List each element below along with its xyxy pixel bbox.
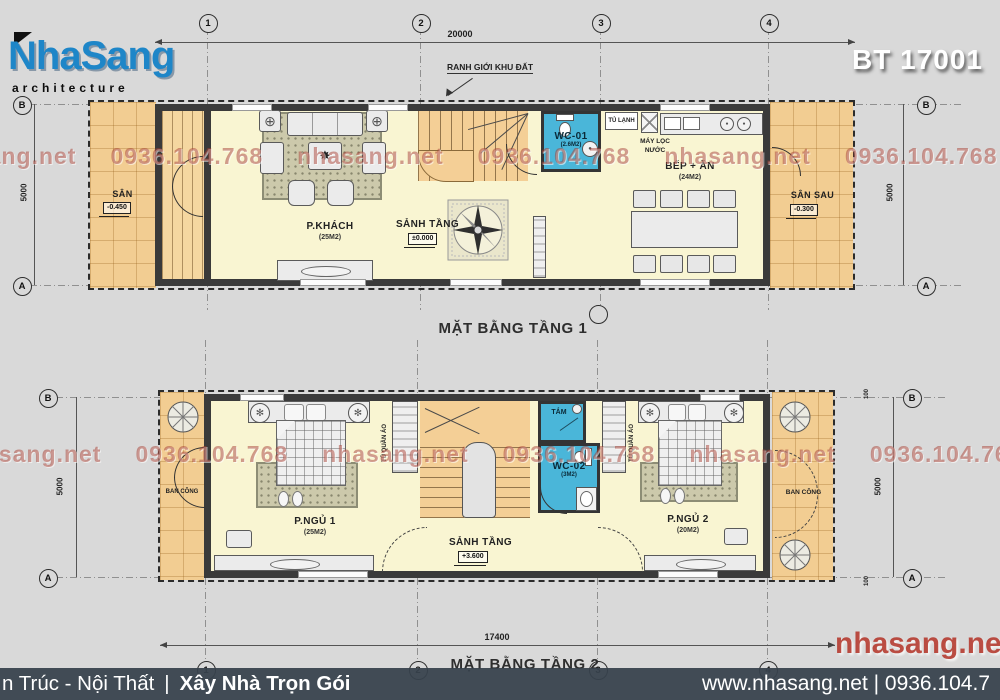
dim-line-5000-f1-right bbox=[903, 104, 904, 285]
fridge-label: TỦ LẠNH bbox=[608, 118, 634, 124]
grid-bubble-B-f2-right: B bbox=[903, 389, 922, 408]
floor1-title: MẶT BẰNG TẦNG 1 bbox=[393, 320, 633, 337]
pillow bbox=[306, 404, 326, 421]
sink-basin bbox=[683, 117, 700, 130]
room-area-living: (25M2) bbox=[270, 234, 390, 241]
stool bbox=[226, 530, 252, 548]
cabinet-handle bbox=[301, 266, 351, 277]
dining-chair bbox=[633, 255, 656, 273]
dim-arrow bbox=[828, 642, 835, 648]
window bbox=[658, 571, 718, 578]
window bbox=[368, 104, 408, 111]
grid-bubble-label: A bbox=[923, 281, 930, 292]
watermark-site: nhasang.net bbox=[297, 143, 443, 170]
project-code: BT 17001 bbox=[852, 44, 983, 76]
window bbox=[300, 279, 366, 286]
level-marker-hall-f2: +3.600 bbox=[458, 551, 488, 563]
dim-line-17400 bbox=[160, 645, 835, 646]
grid-bubble-label: 2 bbox=[418, 18, 423, 29]
slipper-oval bbox=[292, 491, 303, 507]
footer-divider: | bbox=[164, 672, 169, 696]
balcony-plant bbox=[778, 400, 812, 439]
grid-bubble-B-f1-right: B bbox=[917, 96, 936, 115]
window bbox=[450, 279, 502, 286]
watermark-site: nhasang.net bbox=[0, 143, 76, 170]
room-label-bedroom2: P.NGỦ 2 bbox=[643, 514, 733, 525]
end-table: ⊕ bbox=[366, 110, 388, 132]
watermark-site: nhasang.net bbox=[689, 441, 835, 468]
grid-bubble-label: B bbox=[19, 100, 26, 111]
balcony-plant bbox=[778, 538, 812, 577]
dim-text-5000-f1-left: 5000 bbox=[20, 173, 29, 213]
window bbox=[700, 394, 740, 401]
grid-bubble-4-top: 4 bbox=[760, 14, 779, 33]
room-label-hall-f1: SẢNH TẦNG bbox=[385, 219, 470, 230]
grid-bubble-label: B bbox=[909, 393, 916, 404]
balcony-plant bbox=[166, 400, 200, 439]
watermark-phone: 0936.104.768 bbox=[478, 143, 631, 170]
window bbox=[240, 394, 284, 401]
dining-table bbox=[631, 211, 738, 248]
grid-bubble-B-f2-left: B bbox=[39, 389, 58, 408]
blanket-fold bbox=[659, 421, 676, 438]
room-area-bedroom1: (25M2) bbox=[270, 529, 360, 536]
watermark-site: nhasang.net bbox=[0, 441, 101, 468]
pillow bbox=[688, 404, 706, 421]
pillow bbox=[668, 404, 686, 421]
footer-left-text: n Trúc - Nội Thất bbox=[2, 672, 154, 696]
grid-bubble-label: A bbox=[45, 573, 52, 584]
room-area-wc02: (3M2) bbox=[538, 472, 600, 478]
dining-chair bbox=[713, 190, 736, 208]
dining-chair bbox=[713, 255, 736, 273]
room-label-wc01: WC-01 bbox=[541, 131, 601, 142]
grid-bubble-A-f1-right: A bbox=[917, 277, 936, 296]
plant-icon bbox=[778, 538, 812, 572]
footer-right-text: www.nhasang.net | 0936.104.7 bbox=[702, 672, 990, 696]
watermark-row-1: nhasang.net 0936.104.768 nhasang.net 093… bbox=[0, 143, 1000, 170]
blanket-fold bbox=[277, 421, 295, 439]
grid-bubble-A-f2-left: A bbox=[39, 569, 58, 588]
nightstand-flower-icon: ✻ bbox=[724, 403, 744, 423]
room-label-hall-f2: SẢNH TẦNG bbox=[438, 537, 523, 548]
room-label-front-yard: SÂN bbox=[100, 189, 145, 199]
level-marker-back-yard: -0.300 bbox=[790, 204, 818, 216]
stove-burner-icon: ● bbox=[737, 117, 751, 131]
dining-chair bbox=[633, 190, 656, 208]
footer-left: n Trúc - Nội Thất | Xây Nhà Trọn Gói bbox=[2, 668, 351, 700]
grid-bubble-label: A bbox=[19, 281, 26, 292]
window bbox=[232, 104, 272, 111]
room-label-bedroom1: P.NGỦ 1 bbox=[270, 516, 360, 527]
level-marker-front-yard: -0.450 bbox=[103, 202, 131, 214]
dim-text-17400: 17400 bbox=[457, 632, 537, 642]
watermark-phone: 0936.104.768 bbox=[870, 441, 1000, 468]
room-label-shower: TẮM bbox=[542, 409, 576, 416]
window bbox=[640, 279, 710, 286]
dim-text-100-top: 100 bbox=[864, 383, 870, 405]
room-label-back-yard: SÂN SAU bbox=[785, 190, 840, 200]
plant-icon bbox=[166, 400, 200, 434]
room-area-kitchen: (24M2) bbox=[650, 174, 730, 181]
window bbox=[298, 571, 368, 578]
watermark-row-2: nhasang.net 0936.104.768 nhasang.net 093… bbox=[0, 441, 1000, 468]
grid-bubble-A-f1-left: A bbox=[13, 277, 32, 296]
cabinet-handle bbox=[270, 559, 320, 570]
land-boundary-note: RANH GIỚI KHU ĐẤT bbox=[447, 62, 533, 74]
dim-text-5000-f1-right: 5000 bbox=[886, 173, 895, 213]
floor1-wall-living-west bbox=[204, 111, 211, 279]
leader-arrow bbox=[443, 88, 454, 98]
room-label-balcony-left: BAN CÔNG bbox=[160, 489, 204, 495]
slipper-oval bbox=[660, 488, 671, 504]
grid-bubble-1-top: 1 bbox=[199, 14, 218, 33]
footer-left-bold: Xây Nhà Trọn Gói bbox=[180, 672, 351, 696]
room-label-balcony-right: BAN CÔNG bbox=[776, 489, 831, 496]
grid-bubble-label: 3 bbox=[598, 18, 603, 29]
slipper-oval bbox=[674, 488, 685, 504]
dining-chair bbox=[687, 190, 710, 208]
dim-text-20000: 20000 bbox=[420, 29, 500, 39]
dim-text-100-bottom: 100 bbox=[864, 570, 870, 592]
watermark-big: nhasang.net bbox=[835, 627, 1000, 661]
fridge: TỦ LẠNH bbox=[605, 112, 638, 130]
grid-bubble-A-f2-right: A bbox=[903, 569, 922, 588]
grid-bubble-2-top: 2 bbox=[412, 14, 431, 33]
watermark-site: nhasang.net bbox=[322, 441, 468, 468]
nightstand-flower-icon: ✻ bbox=[640, 403, 660, 423]
floorplan-sheet: 1 2 3 4 B A B A B A B A 1 2 3 4 20000 50… bbox=[0, 0, 1000, 700]
toilet-icon bbox=[556, 114, 574, 121]
grid-bubble-label: B bbox=[45, 393, 52, 404]
sofa-three-seat bbox=[287, 112, 363, 136]
slipper-oval bbox=[278, 491, 289, 507]
grid-bubble-3-top: 3 bbox=[592, 14, 611, 33]
compass-medallion bbox=[447, 199, 509, 261]
grid-bubble-B-f1-left: B bbox=[13, 96, 32, 115]
nightstand-flower-icon: ✻ bbox=[348, 403, 368, 423]
logo-subtitle: architecture bbox=[12, 81, 129, 95]
watermark-phone: 0936.104.768 bbox=[845, 143, 998, 170]
compass-icon bbox=[447, 199, 509, 261]
pillow bbox=[284, 404, 304, 421]
dining-chair bbox=[660, 255, 683, 273]
window bbox=[660, 104, 710, 111]
armchair bbox=[288, 180, 315, 206]
dim-line-5000-f1-left bbox=[34, 104, 35, 285]
dining-chair bbox=[660, 190, 683, 208]
watermark-site: nhasang.net bbox=[664, 143, 810, 170]
grid-bubble-label: 4 bbox=[766, 18, 771, 29]
end-table: ⊕ bbox=[259, 110, 281, 132]
dim-line-20000 bbox=[155, 42, 855, 43]
dining-chair bbox=[687, 255, 710, 273]
stove-burner-icon: ● bbox=[720, 117, 734, 131]
dim-text-5000-f2-right: 5000 bbox=[874, 467, 883, 507]
room-area-bedroom2: (20M2) bbox=[643, 527, 733, 534]
logo-title: NhaSang bbox=[8, 34, 174, 79]
level-marker-hall-f1: ±0.000 bbox=[408, 233, 437, 245]
washbasin-bowl-icon bbox=[580, 491, 593, 507]
sink-basin bbox=[664, 117, 681, 130]
dim-line-5000-f2-left bbox=[76, 397, 77, 577]
armchair bbox=[327, 180, 354, 206]
watermark-phone: 0936.104.768 bbox=[110, 143, 263, 170]
nightstand-flower-icon: ✻ bbox=[250, 403, 270, 423]
footer-right: www.nhasang.net | 0936.104.7 bbox=[702, 668, 990, 700]
hall-screen-partition bbox=[533, 216, 546, 278]
grid-bubble-label: A bbox=[909, 573, 916, 584]
grid-bubble-label: B bbox=[923, 100, 930, 111]
watermark-phone: 0936.104.768 bbox=[503, 441, 656, 468]
dim-text-5000-f2-left: 5000 bbox=[56, 467, 65, 507]
footer-bar: n Trúc - Nội Thất | Xây Nhà Trọn Gói www… bbox=[0, 668, 1000, 700]
watermark-phone: 0936.104.768 bbox=[135, 441, 288, 468]
room-label-living: P.KHÁCH bbox=[270, 221, 390, 232]
cabinet-handle bbox=[676, 559, 726, 570]
water-filter bbox=[641, 112, 658, 133]
dim-arrow bbox=[160, 642, 167, 648]
grid-bubble-label: 1 bbox=[205, 18, 210, 29]
dim-line-5000-f2-right bbox=[893, 397, 894, 577]
plant-icon bbox=[778, 400, 812, 434]
